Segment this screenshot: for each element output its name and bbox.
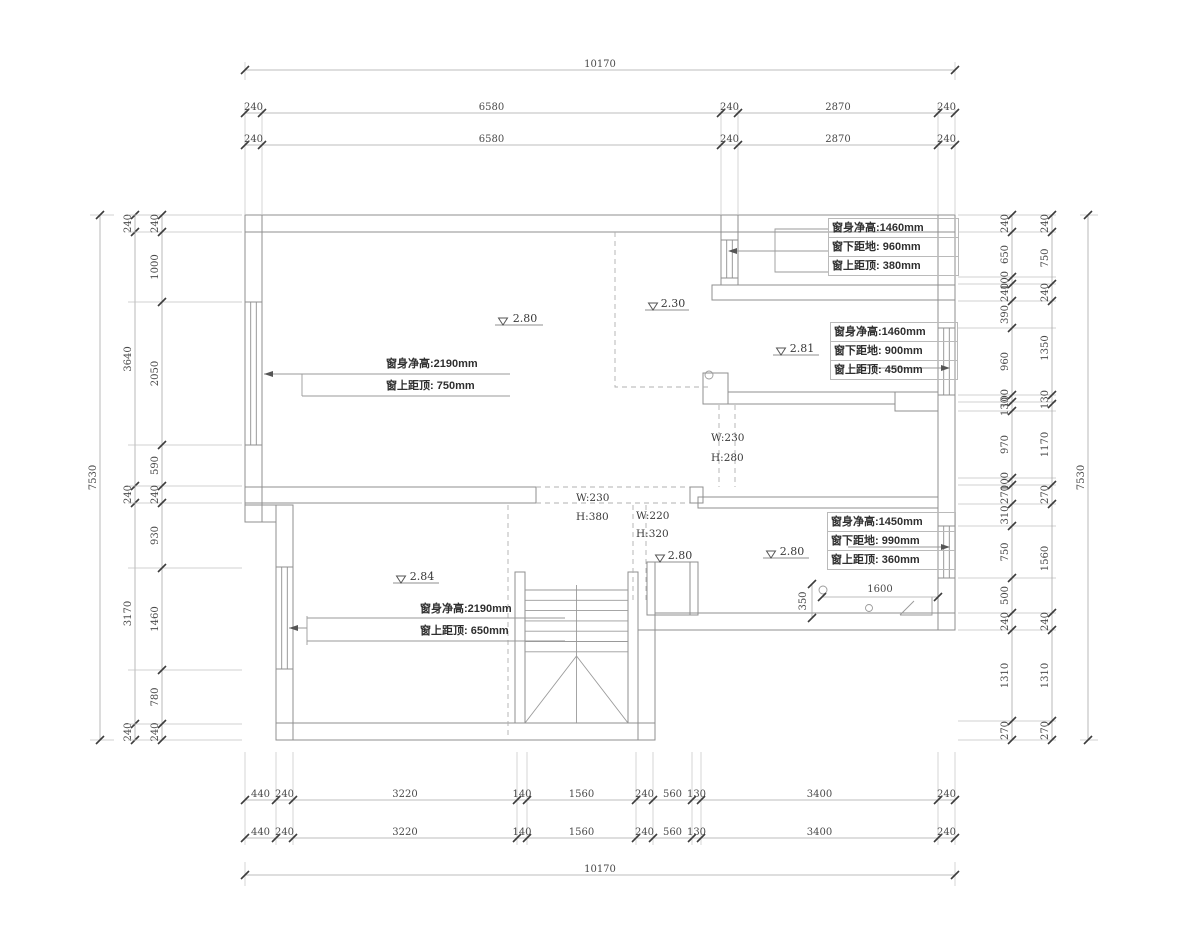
note-line: 窗下距地: 990mm bbox=[828, 532, 955, 551]
dim-label: 970 bbox=[1000, 435, 1011, 454]
opening-dim: W:220 bbox=[636, 510, 669, 522]
note-line: 窗上距顶: 650mm bbox=[420, 620, 560, 642]
level-mark: 2.81 bbox=[773, 342, 819, 355]
note-line: 窗下距地: 960mm bbox=[829, 238, 958, 257]
dim-label: 240 bbox=[635, 789, 654, 800]
dim-label: 240 bbox=[244, 102, 263, 113]
window-note-left-lower: 窗身净高:2190mm 窗上距顶: 650mm bbox=[420, 598, 560, 642]
note-line: 窗上距顶: 360mm bbox=[828, 551, 955, 569]
dim-label: 240 bbox=[275, 827, 294, 838]
dim-label: 560 bbox=[663, 827, 682, 838]
dim-label: 270 bbox=[1000, 485, 1011, 504]
note-line: 窗上距顶: 750mm bbox=[386, 375, 526, 397]
dim-label: 560 bbox=[663, 789, 682, 800]
dim-label-350: 350 bbox=[798, 591, 809, 610]
dim-label: 2870 bbox=[825, 102, 850, 113]
dim-label: 6580 bbox=[479, 134, 504, 145]
note-line: 窗身净高:1460mm bbox=[831, 323, 957, 342]
level-mark: 2.80 bbox=[652, 549, 696, 562]
dim-label: 10170 bbox=[584, 59, 616, 70]
dim-chain-top-overall: 10170 bbox=[241, 59, 959, 80]
note-line: 窗身净高:2190mm bbox=[386, 353, 526, 375]
dim-label: 240 bbox=[1000, 283, 1011, 302]
level-mark: 2.30 bbox=[645, 297, 689, 310]
dim-chain-left-outer: 24036402403170240 bbox=[123, 211, 139, 744]
dim-label: 960 bbox=[1000, 352, 1011, 371]
window-note-left-upper: 窗身净高:2190mm 窗上距顶: 750mm bbox=[386, 353, 526, 397]
dim-label: 240 bbox=[244, 134, 263, 145]
dim-label: 270 bbox=[1040, 485, 1051, 504]
dim-chain-right-outer: 2407502401350130117027015602401310270 bbox=[1040, 211, 1056, 744]
leader-lines bbox=[264, 229, 950, 645]
dim-label: 240 bbox=[937, 102, 956, 113]
dim-label: 1350 bbox=[1040, 335, 1051, 360]
note-line: 窗下距地: 900mm bbox=[831, 342, 957, 361]
note-line: 窗身净高:1450mm bbox=[828, 513, 955, 532]
dim-label: 7530 bbox=[88, 465, 99, 490]
dim-label: 240 bbox=[150, 485, 161, 504]
level-mark: 2.84 bbox=[393, 570, 439, 583]
dim-label: 440 bbox=[251, 827, 270, 838]
dim-label: 240 bbox=[1040, 283, 1051, 302]
dim-chain-left-overall: 7530 bbox=[88, 211, 114, 744]
dim-chain-bottom-overall: 10170 bbox=[241, 862, 959, 886]
dim-label: 240 bbox=[1040, 612, 1051, 631]
dim-label: 10170 bbox=[584, 864, 616, 875]
windows bbox=[245, 240, 955, 669]
dim-label: 1000 bbox=[150, 254, 161, 279]
window-note-mid-right: 窗身净高:1460mm 窗下距地: 900mm 窗上距顶: 450mm bbox=[830, 322, 958, 380]
opening-dim: H:320 bbox=[636, 528, 669, 540]
dim-label: 590 bbox=[150, 456, 161, 475]
dim-label: 500 bbox=[1000, 586, 1011, 605]
opening-dim: H:380 bbox=[576, 511, 609, 523]
dim-chain-right-overall: 7530 bbox=[1076, 211, 1098, 744]
dim-label-1600: 1600 bbox=[867, 584, 892, 595]
dim-chain-left-inner: 240100020505902409301460780240 bbox=[128, 211, 242, 744]
dim-label: 1310 bbox=[1000, 663, 1011, 688]
dim-label: 240 bbox=[720, 102, 739, 113]
dim-chain-bottom-row-b: 440240322014015602405601303400240 bbox=[241, 827, 959, 842]
opening-dim: W:230 bbox=[711, 432, 744, 444]
dim-label: 2050 bbox=[150, 361, 161, 386]
dim-chain-top-row-b: 24065802402870240 bbox=[241, 134, 959, 149]
dim-label: 130 bbox=[687, 789, 706, 800]
dim-label: 140 bbox=[512, 789, 531, 800]
window-note-top-right: 窗身净高:1460mm 窗下距地: 960mm 窗上距顶: 380mm bbox=[828, 218, 959, 276]
dim-label: 130 bbox=[1000, 397, 1011, 416]
opening-dim: W:230 bbox=[576, 492, 609, 504]
dim-label: 3220 bbox=[392, 827, 417, 838]
generated-annotations: 1017024065802402870240240658024028702404… bbox=[88, 59, 1098, 886]
dim-label: 140 bbox=[512, 827, 531, 838]
dim-label: 240 bbox=[1040, 214, 1051, 233]
opening-label: W:230H:380 bbox=[576, 492, 609, 523]
level-value: 2.80 bbox=[668, 549, 693, 562]
level-mark: 2.80 bbox=[495, 312, 543, 325]
dim-label: 240 bbox=[635, 827, 654, 838]
dim-label: 750 bbox=[1000, 542, 1011, 561]
dim-label: 1170 bbox=[1040, 432, 1051, 457]
dim-label: 240 bbox=[1000, 612, 1011, 631]
dim-chain-top-row-a: 24065802402870240 bbox=[241, 102, 959, 215]
floor-plan-drawing: 1017024065802402870240240658024028702404… bbox=[0, 0, 1200, 952]
dim-label: 3220 bbox=[392, 789, 417, 800]
level-value: 2.30 bbox=[661, 297, 686, 310]
dim-label: 240 bbox=[123, 485, 134, 504]
note-line: 窗上距顶: 450mm bbox=[831, 361, 957, 379]
dim-label: 7530 bbox=[1076, 465, 1087, 490]
note-line: 窗身净高:1460mm bbox=[829, 219, 958, 238]
dim-label: 240 bbox=[150, 214, 161, 233]
level-value: 2.80 bbox=[780, 545, 805, 558]
opening-label: W:230H:280 bbox=[711, 432, 744, 464]
dim-label: 240 bbox=[720, 134, 739, 145]
note-line: 窗上距顶: 380mm bbox=[829, 257, 958, 275]
opening-label: W:220H:320 bbox=[636, 510, 669, 540]
dim-label: 240 bbox=[937, 827, 956, 838]
dim-label: 240 bbox=[1000, 214, 1011, 233]
dim-label: 440 bbox=[251, 789, 270, 800]
dim-chain-bottom-row-a: 440240322014015602405601303400240 bbox=[241, 752, 959, 845]
dim-label: 750 bbox=[1040, 248, 1051, 267]
dim-label: 650 bbox=[1000, 245, 1011, 264]
dim-label: 1560 bbox=[569, 827, 594, 838]
dim-label: 240 bbox=[275, 789, 294, 800]
dashed-openings bbox=[508, 232, 735, 737]
level-value: 2.81 bbox=[790, 342, 815, 355]
dim-label: 3640 bbox=[123, 346, 134, 371]
dim-label: 2870 bbox=[825, 134, 850, 145]
dim-label: 240 bbox=[937, 134, 956, 145]
window-note-low-right: 窗身净高:1450mm 窗下距地: 990mm 窗上距顶: 360mm bbox=[827, 512, 956, 570]
level-value: 2.84 bbox=[410, 570, 435, 583]
dim-label: 130 bbox=[1040, 390, 1051, 409]
dim-label: 270 bbox=[1040, 721, 1051, 740]
dim-label: 270 bbox=[1000, 721, 1011, 740]
floor-plan-page: 1017024065802402870240240658024028702404… bbox=[0, 0, 1200, 952]
walls bbox=[245, 215, 955, 740]
dim-label: 310 bbox=[1000, 505, 1011, 524]
dim-label: 240 bbox=[123, 722, 134, 741]
dim-label: 3170 bbox=[123, 601, 134, 626]
dim-label: 240 bbox=[937, 789, 956, 800]
opening-dim: H:280 bbox=[711, 452, 744, 464]
level-mark: 2.80 bbox=[763, 545, 809, 558]
dim-label: 3400 bbox=[807, 827, 832, 838]
dim-label: 6580 bbox=[479, 102, 504, 113]
level-value: 2.80 bbox=[513, 312, 538, 325]
dim-label: 1460 bbox=[150, 606, 161, 631]
dim-label: 930 bbox=[150, 526, 161, 545]
dim-label: 130 bbox=[687, 827, 706, 838]
dim-label: 240 bbox=[150, 722, 161, 741]
dim-label: 1560 bbox=[569, 789, 594, 800]
dim-label: 3400 bbox=[807, 789, 832, 800]
dim-label: 780 bbox=[150, 687, 161, 706]
dim-label: 390 bbox=[1000, 305, 1011, 324]
dim-label: 1310 bbox=[1040, 663, 1051, 688]
dim-label: 240 bbox=[123, 214, 134, 233]
dim-label: 1560 bbox=[1040, 546, 1051, 571]
note-line: 窗身净高:2190mm bbox=[420, 598, 560, 620]
